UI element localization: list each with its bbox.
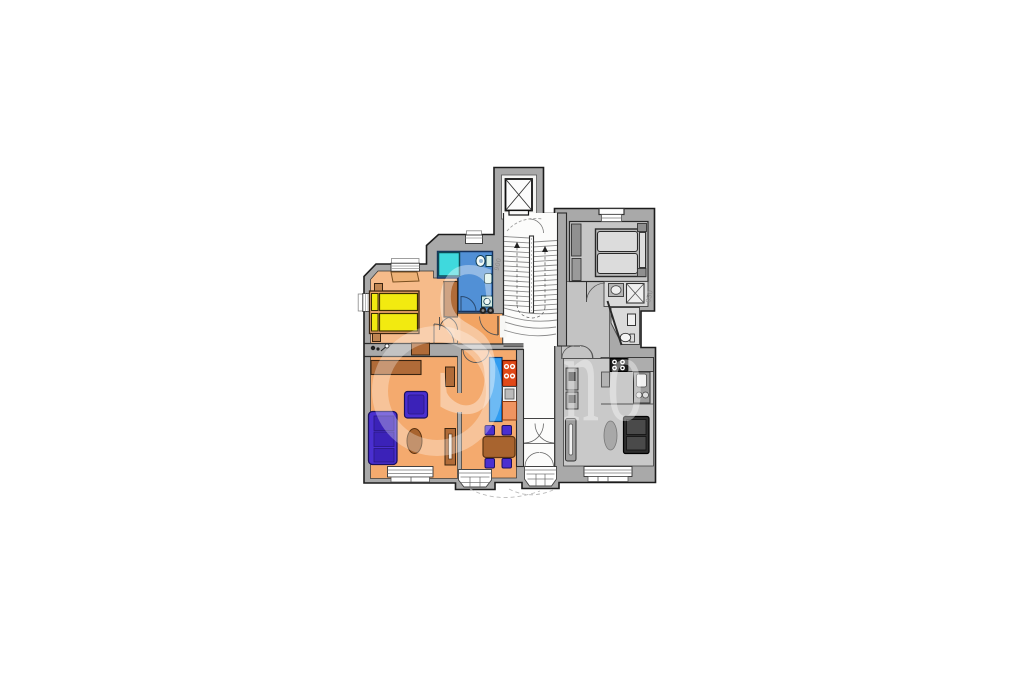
svg-text:S: S: [432, 215, 504, 461]
svg-text:no: no: [563, 306, 652, 449]
